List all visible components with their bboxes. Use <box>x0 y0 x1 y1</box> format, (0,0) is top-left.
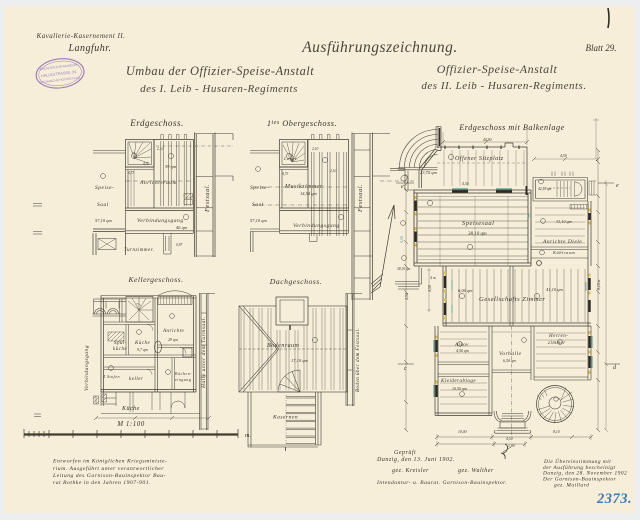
svg-text:Gesellschafts Zimmer: Gesellschafts Zimmer <box>479 296 546 303</box>
svg-text:Offener Sitzplatz: Offener Sitzplatz <box>455 155 504 162</box>
svg-text:Umbau der Offizier-Speise-Anst: Umbau der Offizier-Speise-Anstalt <box>126 64 314 78</box>
svg-text:Anrichte Diele: Anrichte Diele <box>542 239 582 245</box>
svg-text:6,00 qm: 6,00 qm <box>458 288 473 294</box>
svg-text:Langfuhr.: Langfuhr. <box>67 43 111 54</box>
svg-text:Küchen-: Küchen- <box>174 371 192 376</box>
svg-text:keller: keller <box>129 377 143 382</box>
svg-text:4,50: 4,50 <box>462 182 469 187</box>
svg-text:4,50: 4,50 <box>400 236 405 243</box>
svg-text:33,10 qm: 33,10 qm <box>556 219 572 225</box>
svg-text:6,50 qm: 6,50 qm <box>503 358 516 364</box>
svg-text:1tes Obergeschoss.: 1tes Obergeschoss. <box>267 119 337 128</box>
svg-text:Erdgeschoss mit Balkenlage: Erdgeschoss mit Balkenlage <box>458 123 564 132</box>
svg-text:Verbindungsgang: Verbindungsgang <box>84 345 90 391</box>
svg-text:Entworfen im Königlichen Krieg: Entworfen im Königlichen Kriegsministe- <box>52 458 167 465</box>
svg-text:des II. Leib - Husaren-Regim: des II. Leib - Husaren-Regiments. <box>421 80 586 92</box>
svg-text:Anrichteraum: Anrichteraum <box>139 180 177 186</box>
svg-text:Bodenraum: Bodenraum <box>267 343 300 349</box>
svg-text:46 qm: 46 qm <box>176 225 188 230</box>
svg-text:Blatt 29.: Blatt 29. <box>586 43 617 53</box>
svg-text:e: e <box>616 183 619 189</box>
svg-text:Danzig, den 13. Juni 1902.: Danzig, den 13. Juni 1902. <box>376 457 455 463</box>
svg-text:8,10 m: 8,10 m <box>597 279 602 290</box>
svg-text:Speisesaal: Speisesaal <box>462 220 494 227</box>
svg-text:44,90: 44,90 <box>483 138 492 143</box>
svg-text:4,50: 4,50 <box>143 162 149 167</box>
svg-text:57,10 qm: 57,10 qm <box>95 218 113 224</box>
svg-text:zimmer: zimmer <box>547 341 566 346</box>
svg-text:2373.: 2373. <box>596 491 632 507</box>
svg-text:Kasernen: Kasernen <box>272 415 298 421</box>
svg-text:41,10 qm: 41,10 qm <box>546 287 564 293</box>
svg-text:Anrichte: Anrichte <box>162 329 184 334</box>
svg-text:c: c <box>404 366 407 372</box>
svg-text:4,73: 4,73 <box>128 171 134 176</box>
svg-text:0,97: 0,97 <box>176 243 182 248</box>
svg-text:23,70 qm: 23,70 qm <box>420 170 438 176</box>
svg-text:10,50 qm: 10,50 qm <box>452 386 467 392</box>
svg-text:Offizier-Speise-Anstalt: Offizier-Speise-Anstalt <box>437 62 558 76</box>
svg-text:Kavallerie-Kasernement II.: Kavallerie-Kasernement II. <box>36 33 126 40</box>
svg-text:8,10: 8,10 <box>553 430 560 435</box>
svg-text:Speise-: Speise- <box>250 185 269 191</box>
svg-text:39 qm: 39 qm <box>165 164 177 169</box>
svg-text:M 1:100: M 1:100 <box>116 420 144 428</box>
svg-text:Kellergeschoss.: Kellergeschoss. <box>127 275 183 284</box>
svg-text:Küche: Küche <box>134 341 151 346</box>
svg-text:Boden über dem Festsaal.: Boden über dem Festsaal. <box>356 328 361 392</box>
svg-text:gez. Walther: gez. Walther <box>458 468 494 474</box>
svg-text:Geprüft: Geprüft <box>394 449 416 456</box>
svg-text:2,10: 2,10 <box>312 147 318 152</box>
svg-text:14,54 qm: 14,54 qm <box>300 191 318 197</box>
svg-text:Küche: Küche <box>121 406 140 412</box>
svg-text:4,50: 4,50 <box>405 293 410 300</box>
svg-text:d: d <box>613 365 617 371</box>
svg-text:Die Übereinstimmung mit: Die Übereinstimmung mit <box>543 457 611 465</box>
svg-text:2,10: 2,10 <box>330 169 336 174</box>
svg-text:2,10: 2,10 <box>157 147 163 152</box>
svg-text:gez. Maillard: gez. Maillard <box>554 483 589 489</box>
svg-text:Saal: Saal <box>252 202 264 208</box>
svg-text:Herren-: Herren- <box>548 334 568 339</box>
svg-text:rat Rothke in den Jahren 1907-: rat Rothke in den Jahren 1907-901. <box>53 480 151 486</box>
svg-text:e: e <box>401 184 404 190</box>
svg-text:Festsaal.: Festsaal. <box>357 184 364 213</box>
svg-text:Der Garnison-Bauinspektor: Der Garnison-Bauinspektor <box>542 476 617 482</box>
svg-text:10,00: 10,00 <box>458 430 467 435</box>
svg-text:42,50 qm: 42,50 qm <box>538 187 552 192</box>
svg-text:Leitung des Garnison-Bauinspek: Leitung des Garnison-Bauinspektor Bau- <box>52 473 166 479</box>
svg-text:rium. Ausgeführt unter verant: rium. Ausgeführt unter verantwortlicher <box>53 465 164 472</box>
svg-text:Erdgeschoss.: Erdgeschoss. <box>129 118 183 128</box>
svg-text:Vorhalle: Vorhalle <box>499 351 522 357</box>
svg-text:Festsaal.: Festsaal. <box>204 184 211 213</box>
svg-text:4,50: 4,50 <box>506 437 513 442</box>
svg-text:38,10 qm: 38,10 qm <box>397 267 411 272</box>
svg-text:Musikzimmer: Musikzimmer <box>284 184 323 190</box>
svg-text:Speise-: Speise- <box>95 185 114 191</box>
svg-text:Kühlraum: Kühlraum <box>552 250 576 255</box>
svg-text:Lager: Lager <box>283 156 297 161</box>
svg-text:Verbindungsgang: Verbindungsgang <box>293 223 340 229</box>
svg-text:küche: küche <box>113 347 127 352</box>
svg-text:Saal: Saal <box>97 202 109 208</box>
svg-text:4 Stufen: 4 Stufen <box>103 374 120 379</box>
svg-text:29 qm: 29 qm <box>168 337 178 342</box>
svg-text:4,73: 4,73 <box>282 172 288 177</box>
svg-text:eingang: eingang <box>175 377 191 382</box>
svg-text:Halle unter dem Turmsaal.: Halle unter dem Turmsaal. <box>201 316 207 389</box>
svg-text:17,10 qm: 17,10 qm <box>291 358 309 364</box>
svg-text:4,50: 4,50 <box>428 285 433 292</box>
svg-text:Kleiderablage: Kleiderablage <box>440 379 476 384</box>
svg-text:Intendantur- u. Baurat. Garn: Intendantur- u. Baurat. Garnison-Bauinsp… <box>376 480 507 486</box>
svg-text:Ausführungszeichnung.: Ausführungszeichnung. <box>301 39 458 56</box>
svg-text:57,10 qm: 57,10 qm <box>250 218 268 224</box>
svg-text:9,7 qm: 9,7 qm <box>137 347 148 353</box>
svg-text:Turnzimmer.: Turnzimmer. <box>124 248 154 253</box>
svg-text:38,10 qm: 38,10 qm <box>468 232 487 237</box>
svg-text:des I. Leib - Husaren-Regim: des I. Leib - Husaren-Regiments <box>140 83 298 95</box>
svg-text:Dachgeschoss.: Dachgeschoss. <box>269 277 322 286</box>
svg-text:Verbindungsgang: Verbindungsgang <box>137 218 184 224</box>
svg-text:Spül-: Spül- <box>114 341 127 346</box>
svg-text:gez. Kreisler: gez. Kreisler <box>392 468 429 474</box>
svg-text:4 m: 4 m <box>430 276 436 280</box>
